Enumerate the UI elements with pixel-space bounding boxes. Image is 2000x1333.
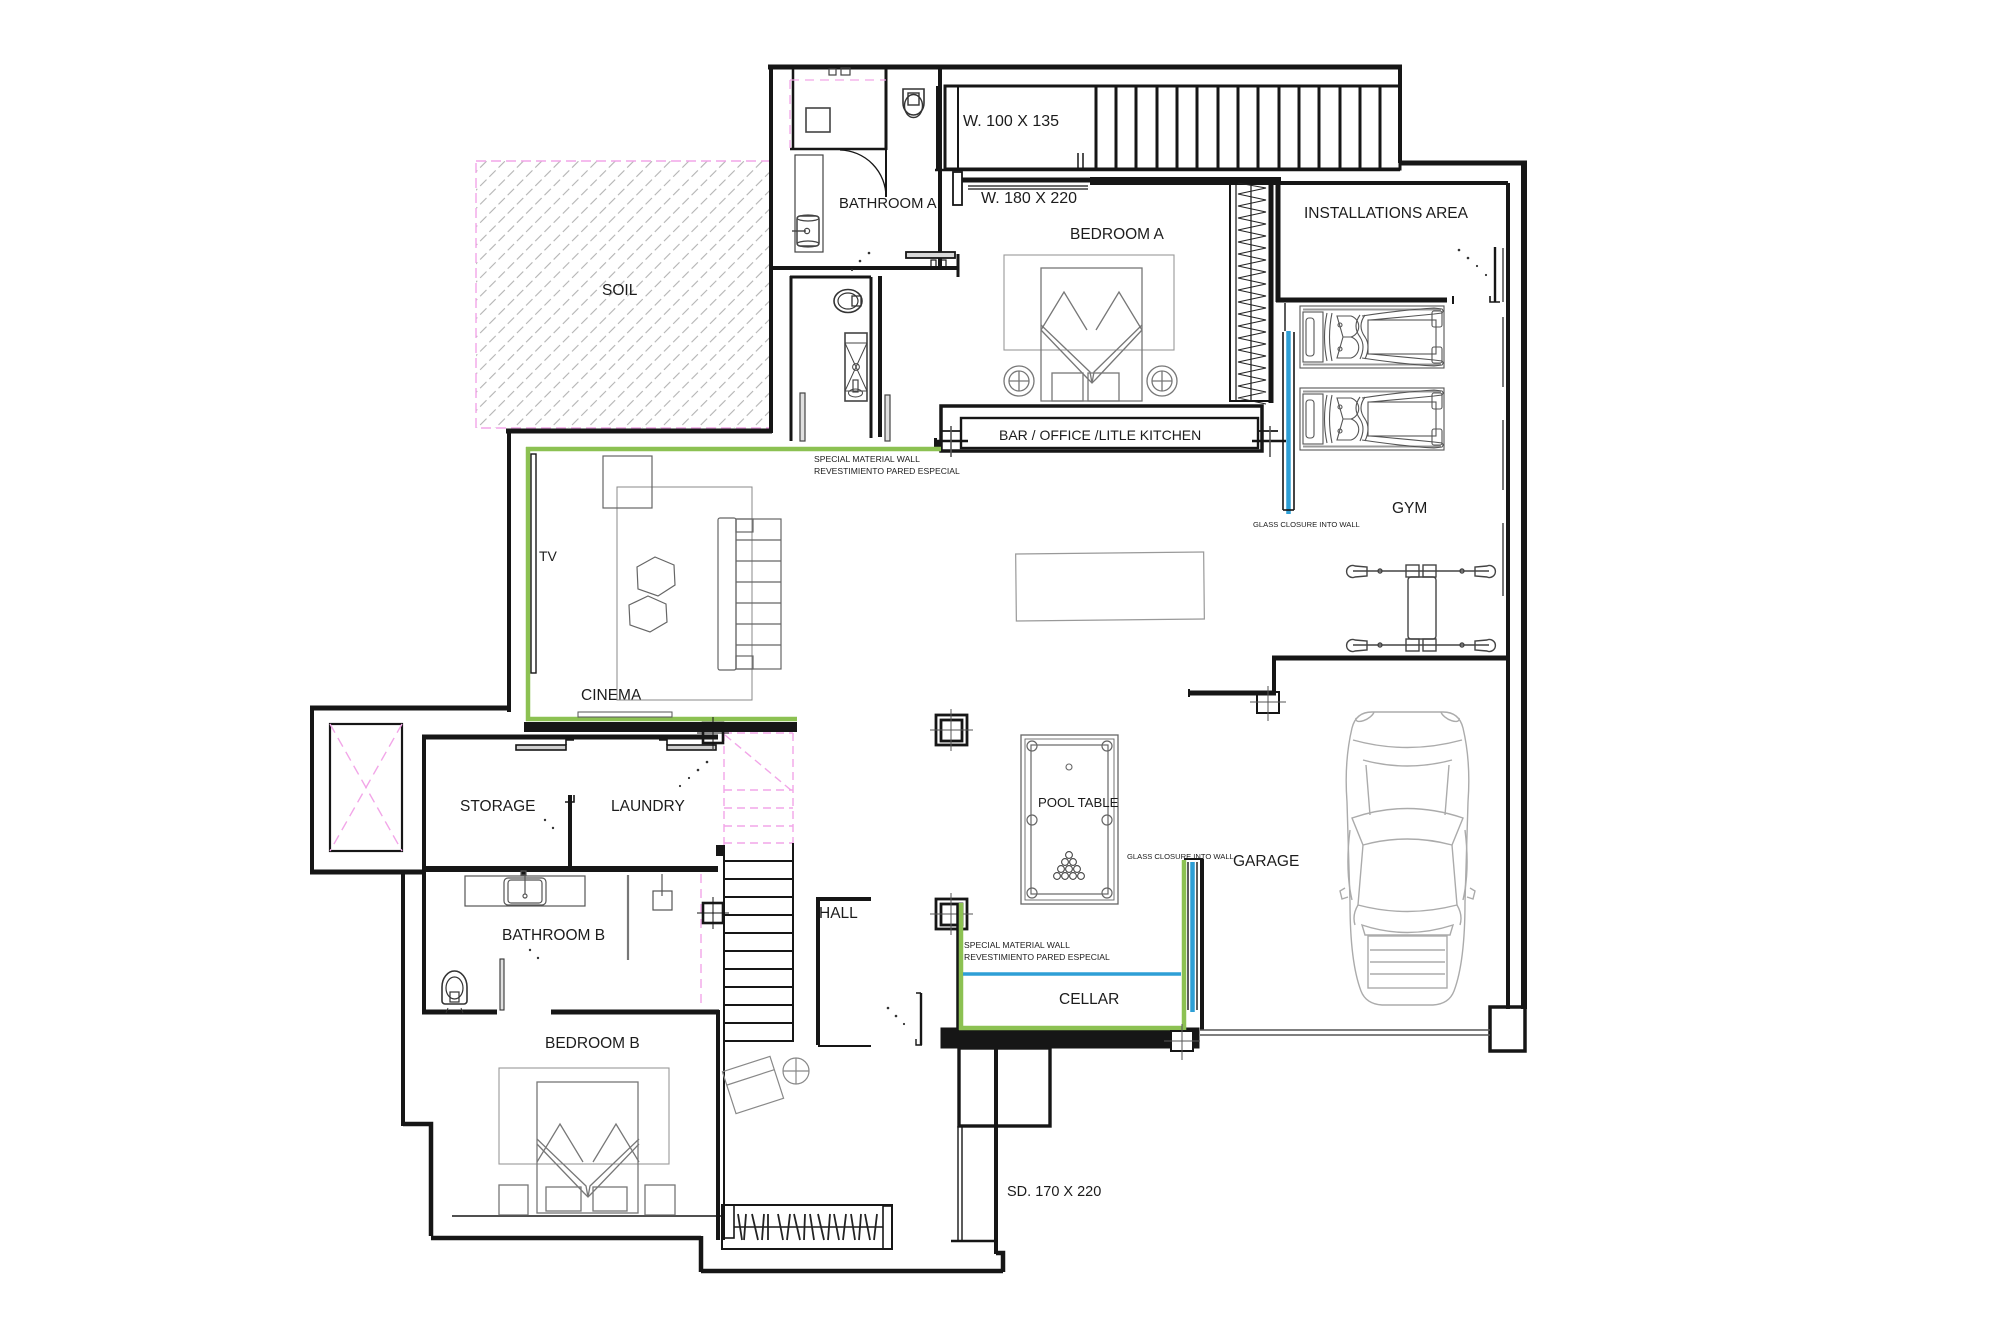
svg-text:GLASS CLOSURE INTO WALL: GLASS CLOSURE INTO WALL: [1253, 520, 1360, 529]
svg-text:CELLAR: CELLAR: [1059, 991, 1119, 1008]
svg-text:BEDROOM A: BEDROOM A: [1070, 226, 1165, 243]
svg-text:REVESTIMIENTO PARED ESPECIAL: REVESTIMIENTO PARED ESPECIAL: [814, 466, 960, 476]
svg-text:GARAGE: GARAGE: [1233, 853, 1299, 870]
svg-text:INSTALLATIONS AREA: INSTALLATIONS AREA: [1304, 205, 1469, 222]
svg-text:GYM: GYM: [1392, 500, 1427, 517]
svg-text:TV: TV: [539, 548, 558, 564]
svg-text:CINEMA: CINEMA: [581, 687, 642, 704]
svg-text:LAUNDRY: LAUNDRY: [611, 798, 685, 815]
svg-text:POOL TABLE: POOL TABLE: [1038, 795, 1119, 810]
svg-text:BATHROOM A: BATHROOM A: [839, 196, 937, 212]
svg-text:W. 180 X 220: W. 180 X 220: [981, 190, 1077, 207]
svg-text:W. 100 X 135: W. 100 X 135: [963, 113, 1059, 130]
svg-text:SPECIAL MATERIAL WALL: SPECIAL MATERIAL WALL: [964, 940, 1070, 950]
svg-text:SOIL: SOIL: [602, 282, 638, 299]
svg-text:BEDROOM B: BEDROOM B: [545, 1035, 640, 1052]
svg-text:GLASS CLOSURE INTO WALL: GLASS CLOSURE INTO WALL: [1127, 852, 1234, 861]
svg-text:STORAGE: STORAGE: [460, 798, 536, 815]
svg-text:HALL: HALL: [819, 905, 858, 922]
svg-text:SPECIAL MATERIAL WALL: SPECIAL MATERIAL WALL: [814, 454, 920, 464]
svg-text:REVESTIMIENTO PARED ESPECIAL: REVESTIMIENTO PARED ESPECIAL: [964, 952, 1110, 962]
svg-text:BATHROOM B: BATHROOM B: [502, 927, 605, 944]
svg-text:SD. 170 X 220: SD. 170 X 220: [1007, 1184, 1101, 1200]
svg-text:BAR / OFFICE /LITLE KITCHEN: BAR / OFFICE /LITLE KITCHEN: [999, 427, 1201, 443]
